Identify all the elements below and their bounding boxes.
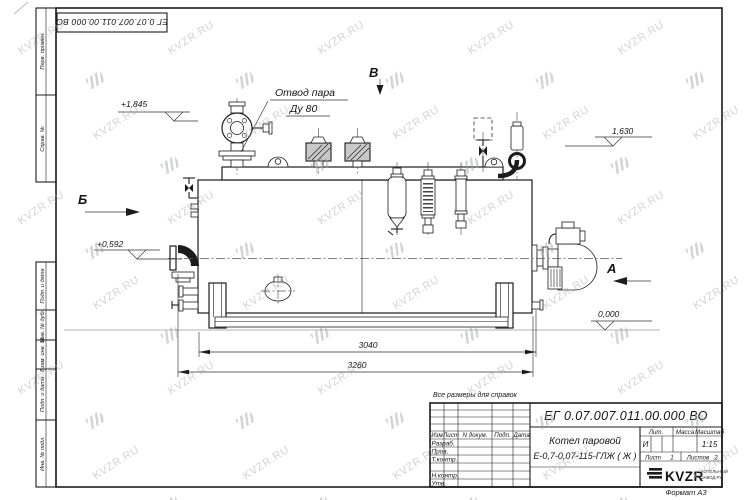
doc-title-line1: Котел паровой bbox=[549, 436, 621, 447]
skid-rail bbox=[215, 317, 508, 327]
rear-stub bbox=[532, 302, 540, 309]
elbow-bracket bbox=[172, 272, 194, 278]
view-marker-a: А bbox=[606, 261, 616, 276]
kvzr-logo: KVZR КОТЕЛЬНЫЙ ЗАВОД.РУ bbox=[647, 468, 728, 484]
header-list: Лист bbox=[442, 432, 459, 439]
view-marker-v: В bbox=[369, 65, 378, 80]
view-arrow-a bbox=[613, 277, 627, 285]
elevation-1630: 1,630 bbox=[612, 126, 634, 136]
drawing-sheet: Перв. примен. Справ. № Подп. и дата Инв.… bbox=[0, 0, 750, 500]
row-prov: Пров. bbox=[432, 449, 449, 456]
boiler-drawing bbox=[168, 98, 622, 328]
margin-label-inv-dubl: Инв. № дубл. bbox=[40, 308, 46, 342]
margin-label-podp-data-2: Подп. и дата bbox=[40, 377, 46, 412]
safety-valve-1 bbox=[306, 143, 331, 161]
row-nkontr: Н.контр. bbox=[432, 473, 459, 480]
valve-bowtie-right bbox=[479, 146, 483, 156]
valve-flange bbox=[219, 151, 255, 156]
steam-outlet-valve bbox=[219, 98, 272, 175]
margin-label-perv-primen: Перв. примен. bbox=[40, 32, 46, 69]
kvzr-logo-sub2: ЗАВОД.РУ bbox=[701, 475, 722, 480]
row-utv: Утв. bbox=[431, 481, 447, 488]
sheets-value: 2 bbox=[713, 455, 718, 462]
scale-value: 1:15 bbox=[702, 440, 718, 449]
inlet-elbow-pipe bbox=[178, 249, 195, 266]
dim-text-3260: 3260 bbox=[348, 360, 367, 370]
view-marker-b: Б bbox=[78, 192, 87, 207]
doc-title-line2: Е-0,7-0,07-115-ГЛЖ ( Ж ) bbox=[533, 451, 636, 461]
left-fittings bbox=[170, 178, 198, 311]
kvzr-logo-sub1: КОТЕЛЬНЫЙ bbox=[701, 469, 728, 474]
callout-steam-outlet: Отвод пара Ду 80 bbox=[241, 87, 348, 152]
kvzr-logo-icon bbox=[649, 468, 662, 471]
safety-valve-2 bbox=[345, 143, 370, 161]
margin-label-inv-podl: Инв. № подл. bbox=[40, 436, 46, 471]
burner-assembly bbox=[532, 222, 597, 310]
sheet-label: Лист bbox=[644, 455, 661, 462]
row-razrab: Разраб. bbox=[432, 440, 455, 448]
header-massa: Масса bbox=[676, 429, 695, 436]
view-arrow-b bbox=[126, 208, 140, 216]
instrument-cylinder bbox=[388, 177, 406, 218]
pressure-gauge bbox=[511, 126, 523, 150]
burner-motor bbox=[556, 228, 580, 244]
lifting-lugs bbox=[268, 157, 503, 167]
dim-text-3040: 3040 bbox=[359, 340, 378, 350]
sheet-value: 1 bbox=[670, 455, 673, 462]
lit-value: И bbox=[643, 440, 649, 449]
lower-stub-1 bbox=[182, 288, 198, 295]
title-block: Все размеры для справок Изм Лист N докум… bbox=[430, 391, 728, 497]
burner-fan-housing bbox=[558, 244, 597, 290]
row-tkontr: Т.контр. bbox=[432, 457, 458, 464]
top-stamp-doc-number: ЕГ 0.07.007.011.00.000 ВО bbox=[56, 17, 168, 27]
margin-label-podp-data-1: Подп. и дата bbox=[40, 268, 46, 303]
inlet-flange bbox=[170, 246, 176, 270]
wall-stub-1 bbox=[191, 204, 198, 209]
reference-note: Все размеры для справок bbox=[433, 391, 518, 399]
header-izm: Изм bbox=[431, 432, 443, 439]
top-stamp: ЕГ 0.07.007.011.00.000 ВО bbox=[56, 13, 168, 32]
corner-fold-mark bbox=[14, 2, 28, 14]
doc-number: ЕГ 0.07.007.011.00.000 ВО bbox=[544, 409, 708, 423]
header-data: Дата bbox=[512, 432, 530, 439]
callout-line1: Отвод пара bbox=[275, 87, 335, 99]
drawing-canvas: Перв. примен. Справ. № Подп. и дата Инв.… bbox=[0, 0, 750, 500]
burner-flange bbox=[532, 245, 537, 271]
header-lit: Лит. bbox=[648, 429, 664, 436]
view-arrow-v bbox=[377, 85, 384, 95]
elevation-0000: 0,000 bbox=[598, 309, 620, 319]
kvzr-logo-text: KVZR bbox=[665, 469, 704, 484]
elevation-0592: +0,592 bbox=[97, 239, 124, 249]
margin-stamps: Перв. примен. Справ. № Подп. и дата Инв.… bbox=[36, 8, 56, 487]
margin-label-sprav-n: Справ. № bbox=[40, 126, 46, 151]
format-label: Формат А3 bbox=[665, 488, 707, 497]
margin-label-vzam-inv: Взам. инв. № bbox=[40, 337, 46, 372]
lower-stub-2 bbox=[182, 302, 198, 309]
gauge-glass bbox=[456, 179, 466, 211]
elevation-1845: +1,845 bbox=[121, 99, 148, 109]
header-podp: Подп. bbox=[494, 432, 510, 439]
header-n-dokum: N докум. bbox=[462, 432, 487, 439]
header-masshtab: Масштаб bbox=[695, 429, 724, 436]
boiler-shell bbox=[198, 180, 532, 313]
sheets-label: Листов bbox=[686, 455, 710, 462]
valve-bowtie-left bbox=[185, 184, 189, 192]
wall-stub-2 bbox=[191, 212, 198, 217]
callout-line2: Ду 80 bbox=[289, 103, 318, 115]
